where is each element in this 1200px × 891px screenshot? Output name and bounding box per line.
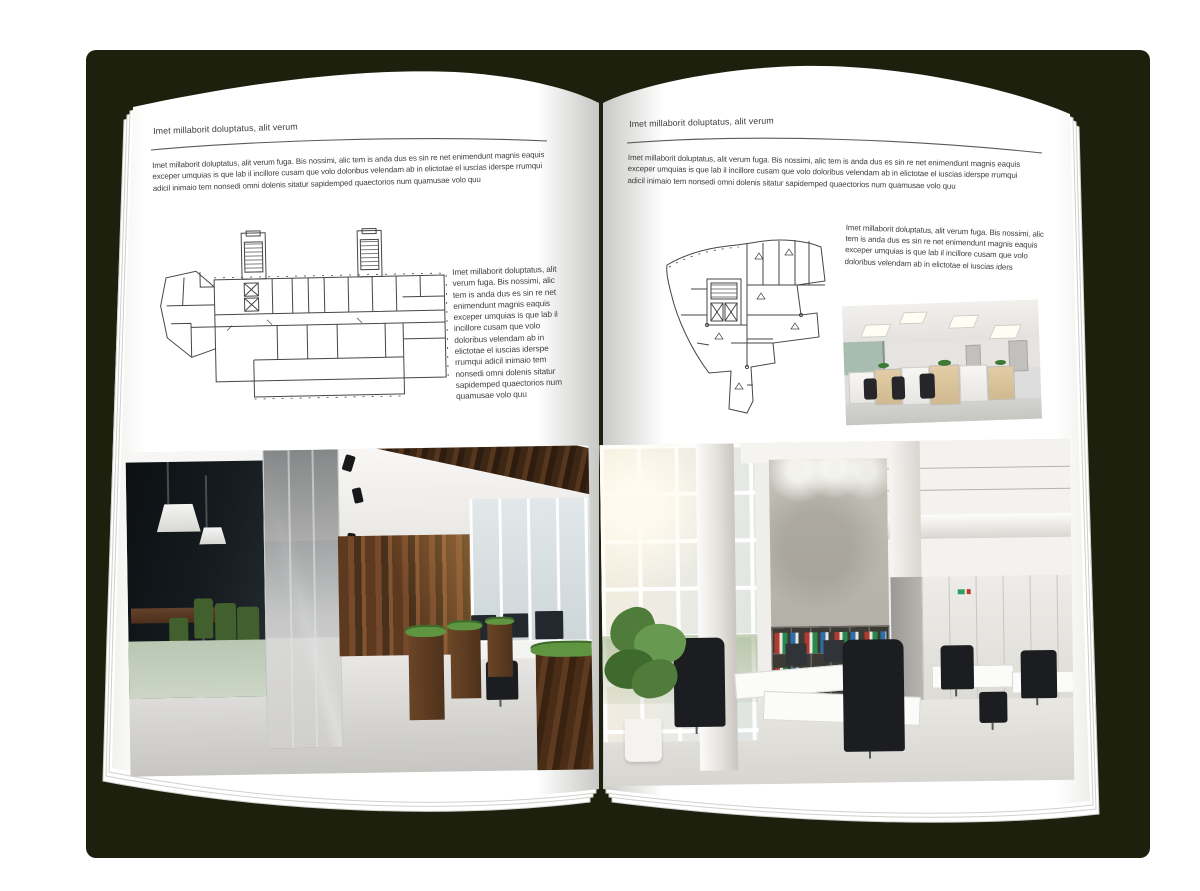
safety-sign [966,589,970,594]
glass-partition [262,449,343,748]
planter-grass [531,640,594,657]
glass-mullion [312,450,318,748]
office-photo-left [125,445,593,776]
wood-planter [487,622,513,677]
cabinet [959,365,989,403]
monitor [823,640,844,662]
office-chair [920,374,936,399]
office-chair [941,645,975,690]
left-page-caption: Imet millaborit doluptatus, alit verum f… [452,263,572,402]
monitor [786,644,807,666]
glass-meeting-room [126,460,266,699]
office-chair [842,639,905,752]
waste-bin [979,692,1008,723]
plant-pot [624,719,662,762]
planter-grass [448,620,483,631]
lamp-cord [205,475,208,527]
office-chair [892,376,906,399]
floor-plan-left [155,226,451,419]
ceiling-light [899,312,927,325]
ceiling-light [860,324,891,338]
wood-planter [450,627,481,699]
lamp-cord [167,462,170,505]
cabinet [987,365,1015,400]
wood-planter [408,632,444,720]
pendant-lamp [156,504,200,533]
monitor [535,611,563,639]
planter-grass [485,617,515,625]
green-chair [193,598,213,638]
potted-plant [604,608,691,763]
desk-row [848,362,1037,407]
brochure-spread-mockup: Imet millaborit doluptatus, alit verum I… [0,0,1200,891]
glass-mullion [287,450,293,748]
ceiling-light [948,315,979,329]
pendant-lamp [199,527,226,544]
right-page-intro: Imet millaborit doluptatus, alit verum f… [627,152,1028,193]
desk-plant [995,360,1006,365]
floor-plan-right [651,219,839,417]
concrete-wall [769,458,889,630]
office-photo-right [600,439,1075,787]
foreground-planter [536,649,593,776]
planter-grass [406,624,446,637]
office-photo-small [842,300,1042,426]
office-chair [863,379,877,400]
meeting-room-floor [128,640,265,699]
office-chair [1021,650,1057,698]
exit-sign [957,589,964,594]
desk-plant [878,363,889,369]
right-page-caption: Imet millaborit doluptatus, alit verum f… [844,222,1045,274]
